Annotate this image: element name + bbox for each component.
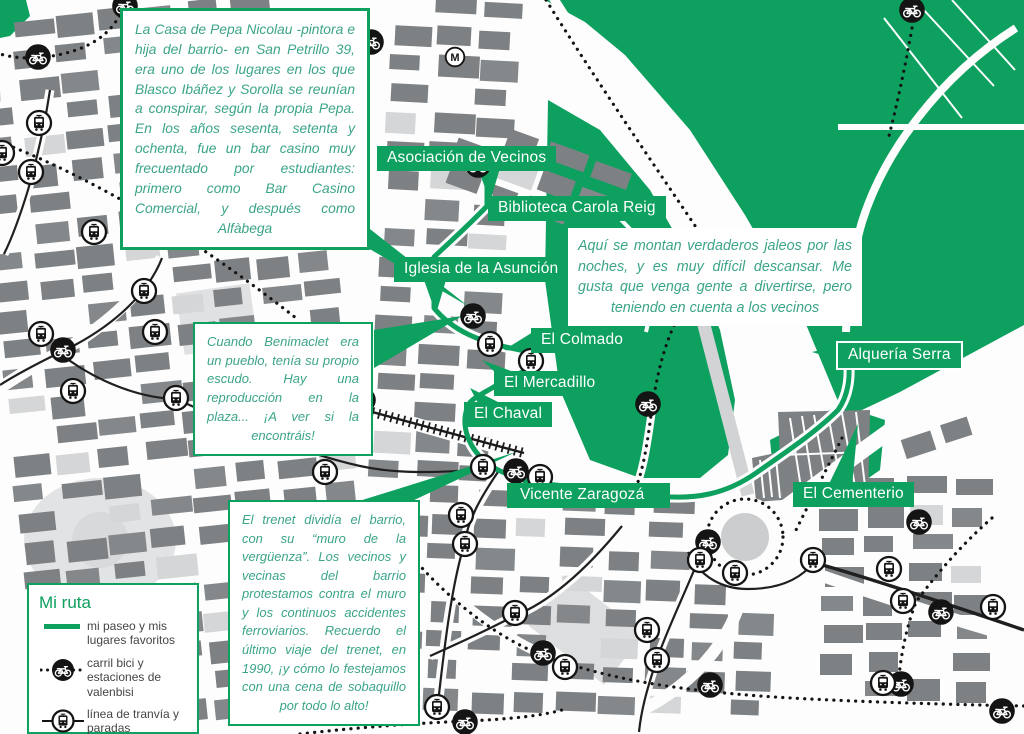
map-label-el-cementerio: El Cementerio (793, 482, 914, 507)
map-label-iglesia-de-la-asuncion: Iglesia de la Asunción (394, 257, 568, 282)
roundabout (721, 513, 769, 561)
tram-stop-icon (39, 707, 87, 734)
legend-item-route: mi paseo y mis lugares favoritos (39, 619, 189, 648)
route-line-icon (39, 619, 87, 633)
map-label-el-colmado: El Colmado (531, 328, 633, 353)
benimaclet-route-map: M Asociación de Vecinos Biblioteca Carol… (0, 0, 1024, 734)
bike-station-icon (39, 656, 87, 684)
legend-item-label: mi paseo y mis lugares favoritos (87, 619, 189, 648)
map-label-biblioteca-carola-reig: Biblioteca Carola Reig (488, 196, 666, 221)
legend-item-bike: carril bici y estaciones de valenbisi (39, 656, 189, 699)
map-label-el-chaval: El Chaval (464, 402, 552, 427)
legend-title: Mi ruta (39, 593, 189, 613)
note-jaleos: Aquí se montan verdaderos jaleos por las… (568, 228, 862, 326)
note-escudo: Cuando Benimaclet era un pueblo, tenía s… (193, 322, 373, 456)
legend-item-label: línea de tranvía y paradas (87, 707, 189, 734)
note-trenet: El trenet dividía el barrio, con su “mur… (228, 500, 420, 726)
map-label-vicente-zaragoza: Vicente Zaragozá (507, 483, 670, 508)
legend-item-tram: línea de tranvía y paradas (39, 707, 189, 734)
note-pepa-nicolau: La Casa de Pepa Nicolau -pintora e hija … (120, 8, 370, 250)
legend: Mi ruta mi paseo y mis lugares favoritos… (27, 583, 199, 734)
map-label-asociacion-de-vecinos: Asociación de Vecinos (377, 146, 556, 171)
legend-item-label: carril bici y estaciones de valenbisi (87, 656, 189, 699)
map-label-el-mercadillo: El Mercadillo (494, 371, 605, 396)
map-label-alqueria-serra: Alquería Serra (836, 341, 963, 370)
